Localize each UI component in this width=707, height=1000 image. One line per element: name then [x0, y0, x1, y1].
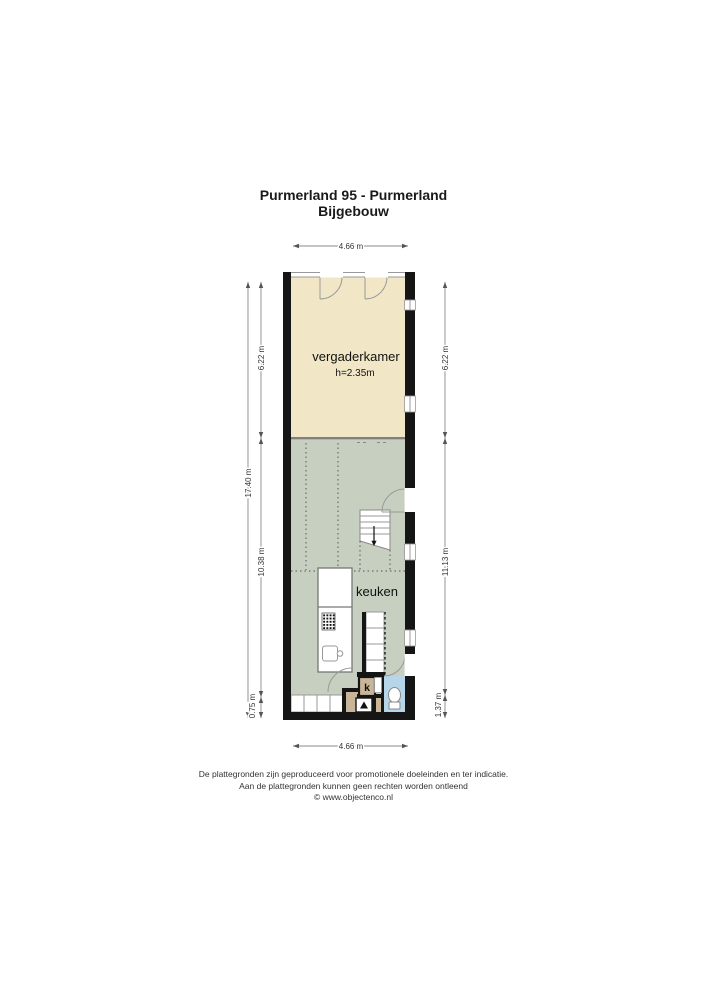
footer-line2: Aan de plattegronden kunnen geen rechten… — [0, 781, 707, 793]
footer-line1: De plattegronden zijn geproduceerd voor … — [0, 769, 707, 781]
dim-bottom: 4.66 m — [339, 742, 364, 751]
room-divider-line — [291, 437, 405, 440]
door-opening — [405, 654, 416, 676]
footer-copyright: © www.objectenco.nl — [0, 792, 707, 804]
bottom-wall — [283, 712, 415, 720]
vergaderkamer-label: vergaderkamer — [312, 349, 400, 364]
floor-plan-canvas: vergaderkamer h=2.35m keuken k 4.66 m 4.… — [0, 0, 707, 1000]
small-cabinet-cell — [375, 678, 382, 693]
cabinet-wall — [362, 612, 366, 676]
dim-right-seg3: 1.37 m — [434, 692, 443, 717]
dim-left-seg2: 10.38 m — [257, 547, 266, 576]
boiler-box — [356, 698, 372, 712]
dim-left-seg3: 0.75 m — [248, 693, 257, 718]
sink-icon — [323, 646, 338, 661]
door-opening — [405, 488, 416, 512]
dim-left-seg1: 6.22 m — [257, 345, 266, 370]
kitchen-counter — [291, 695, 343, 712]
cabinet-column — [362, 612, 385, 676]
dim-right-seg2: 11.13 m — [441, 548, 450, 577]
toilet-icon — [389, 688, 401, 710]
keuken-label: keuken — [356, 584, 398, 599]
dim-right-seg1: 6.22 m — [441, 345, 450, 370]
vergaderkamer-height-label: h=2.35m — [335, 368, 374, 379]
sink-tap-icon — [337, 651, 343, 657]
dim-top: 4.66 m — [339, 242, 364, 251]
top-wall — [291, 272, 405, 278]
footer-disclaimer: De plattegronden zijn geproduceerd voor … — [0, 769, 707, 804]
left-wall — [283, 272, 291, 720]
dim-left-total: 17.40 m — [244, 468, 253, 497]
cooktop-icon — [322, 613, 335, 630]
kitchen-island — [318, 568, 352, 672]
kast-label: k — [364, 682, 370, 694]
